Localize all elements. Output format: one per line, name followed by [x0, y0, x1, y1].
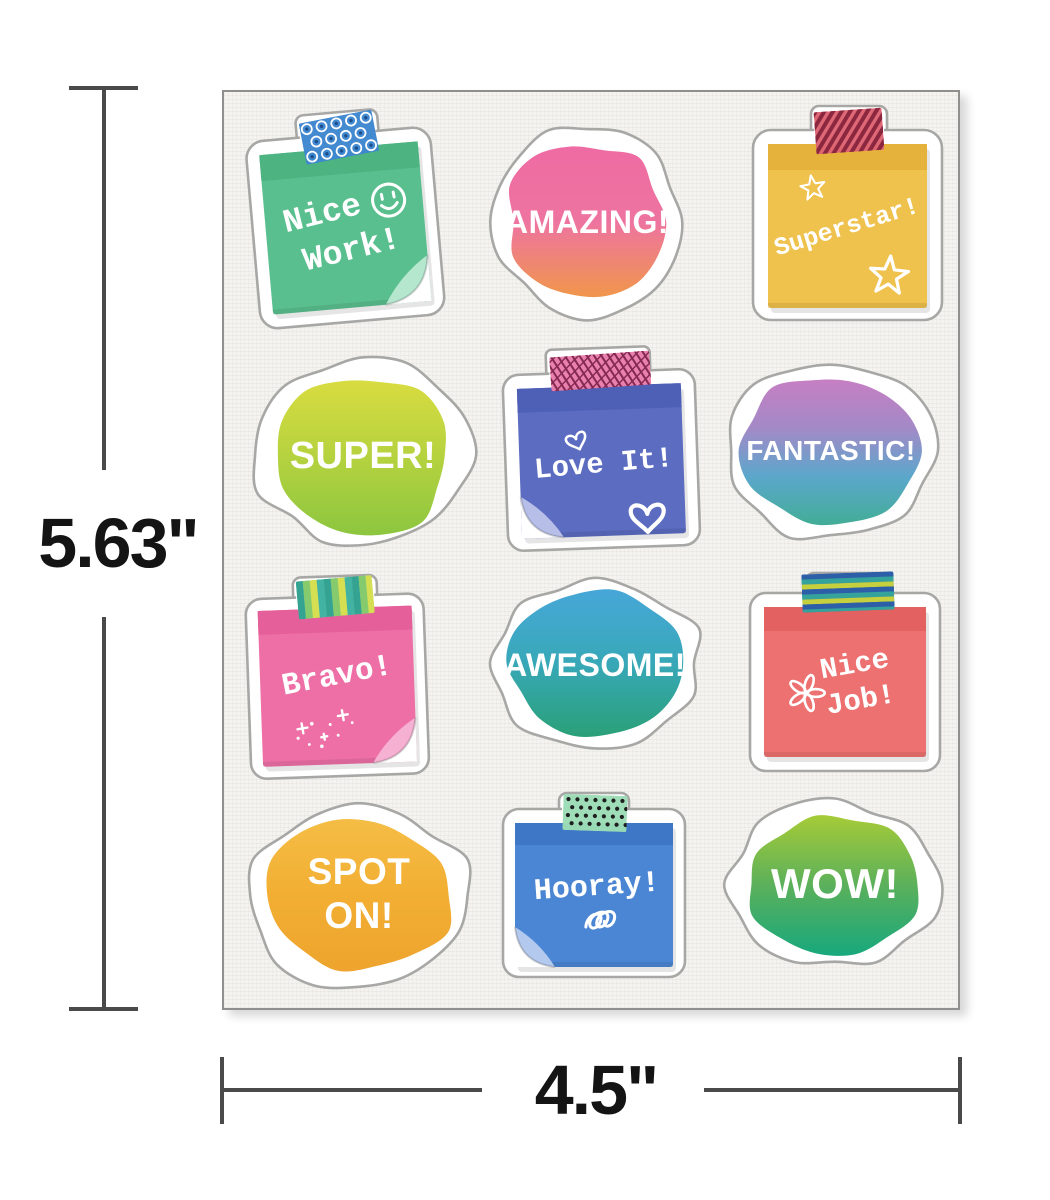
height-dimension-line-upper	[102, 88, 106, 470]
sticker-love-it: Love It!	[505, 342, 697, 555]
sticker-text: FANTASTIC!	[746, 435, 915, 466]
sticker-amazing: AMAZING!	[487, 123, 687, 320]
sticker-text: AMAZING!	[505, 204, 669, 240]
stickers-layer: NiceWork!AMAZING!Superstar!SUPER!Love It…	[0, 0, 1050, 1200]
height-dimension-bottom-cap	[69, 1007, 138, 1011]
sticker-text: SUPER!	[290, 435, 437, 477]
sticker-hooray: Hooray!	[503, 793, 685, 979]
sticker-bravo: Bravo!	[248, 576, 438, 778]
sticker-nice-work: NiceWork!	[252, 112, 437, 324]
sticker-wow: WOW!	[726, 796, 944, 972]
sticker-nice-job: NiceJob!	[750, 573, 942, 775]
width-dimension-line-left	[222, 1088, 482, 1092]
width-dimension-right-cap	[958, 1057, 962, 1124]
sticker-text: WOW!	[771, 860, 899, 907]
sticker-text: AWESOME!	[504, 647, 686, 683]
width-dimension-line-right	[704, 1088, 960, 1092]
sticker-text: ON!	[324, 895, 393, 936]
sticker-text: SPOT	[308, 851, 411, 892]
sticker-awesome: AWESOME!	[485, 574, 705, 752]
sticker-fantastic: FANTASTIC!	[722, 356, 940, 546]
sticker-super: SUPER!	[252, 356, 474, 554]
washi-tape	[296, 575, 376, 620]
sticker-spot-on: SPOTON!	[244, 800, 474, 992]
product-dimension-image: NiceWork!AMAZING!Superstar!SUPER!Love It…	[0, 0, 1050, 1200]
width-dimension-label: 4.5"	[496, 1055, 696, 1125]
washi-tape	[801, 571, 894, 614]
sticker-superstar: Superstar!	[753, 106, 942, 325]
height-dimension-label: 5.63"	[13, 508, 223, 578]
height-dimension-line-lower	[102, 617, 106, 1009]
washi-tape	[562, 794, 628, 832]
